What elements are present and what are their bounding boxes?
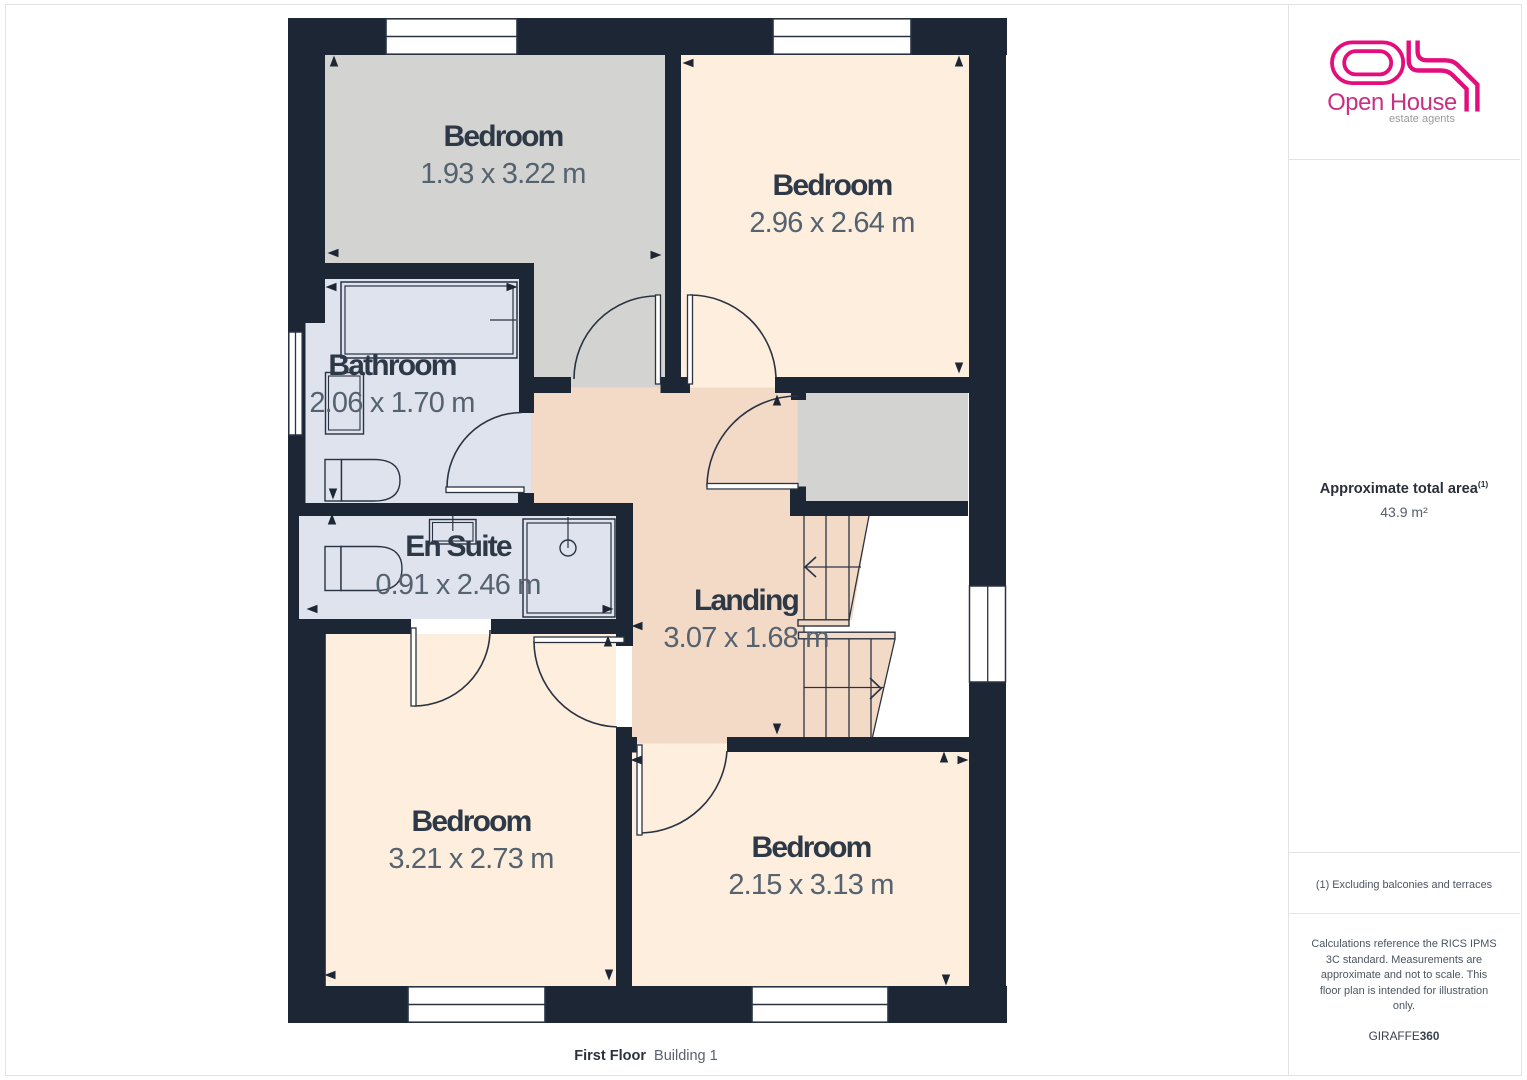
- svg-text:Bathroom: Bathroom: [328, 349, 455, 382]
- svg-text:3.21 x 2.73 m: 3.21 x 2.73 m: [388, 843, 553, 875]
- svg-text:Open House: Open House: [1327, 89, 1457, 116]
- svg-text:Bedroom: Bedroom: [443, 120, 562, 153]
- svg-text:Bedroom: Bedroom: [751, 831, 870, 864]
- svg-text:En Suite: En Suite: [405, 530, 512, 563]
- svg-text:3.07 x 1.68 m: 3.07 x 1.68 m: [663, 622, 828, 654]
- svg-text:1.93 x 3.22 m: 1.93 x 3.22 m: [420, 158, 585, 190]
- svg-text:Bedroom: Bedroom: [411, 805, 530, 838]
- svg-text:0.91 x 2.46 m: 0.91 x 2.46 m: [375, 569, 540, 601]
- svg-text:2.96 x 2.64 m: 2.96 x 2.64 m: [749, 207, 914, 239]
- svg-text:Bedroom: Bedroom: [772, 169, 891, 202]
- svg-text:2.15 x 3.13 m: 2.15 x 3.13 m: [728, 869, 893, 901]
- svg-text:2.06 x 1.70 m: 2.06 x 1.70 m: [309, 387, 474, 419]
- svg-text:Landing: Landing: [694, 584, 799, 617]
- svg-text:estate agents: estate agents: [1389, 113, 1456, 125]
